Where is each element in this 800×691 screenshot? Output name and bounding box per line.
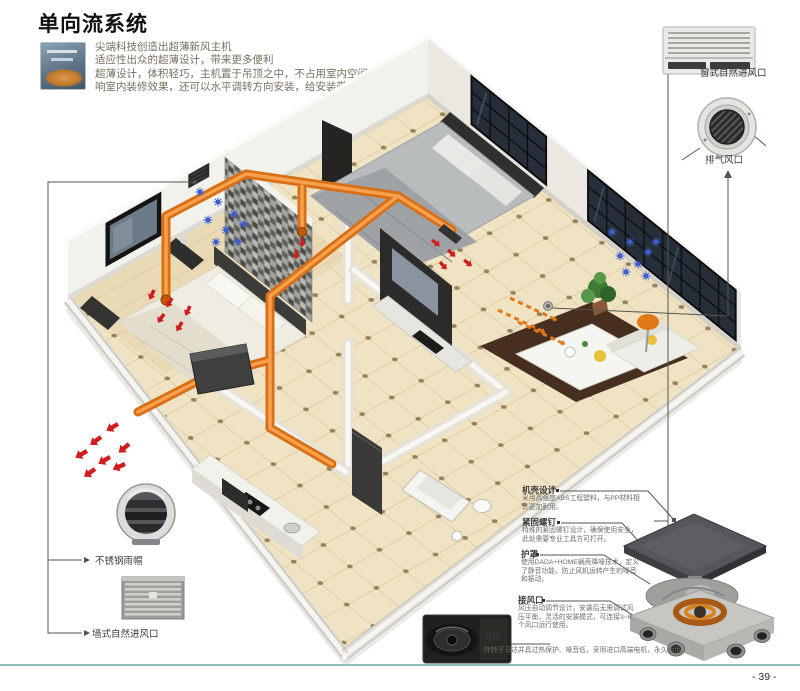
catalog-page: 单向流系统 尖端科技创造出超薄新风主机 适应性出众的超薄设计，带来更多便利 超薄… [0, 0, 800, 691]
exploded-unit-diagram [624, 514, 774, 661]
motor-desc: 外转子马达并具过热保护、噪音低，采用进口高端电机，永久耐用。 [484, 647, 784, 656]
window-inlet-label: 窗式自然进风口 [700, 65, 767, 79]
feature-desc: 采用高强度ABS工程塑料，与PP材料相比更加耐用。 [522, 495, 642, 512]
feature-desc: 风压自动调节设计，安装后无需调试风压平衡，灵活的安装模式，可连接3~6个风口运行… [518, 605, 638, 631]
wall-inlet-label: 墙式自然进风口 [92, 626, 159, 640]
rain-cap-image [117, 484, 175, 545]
exhaust-outlet-label: 排气风口 [705, 152, 743, 166]
feature-desc: 特殊的紧固螺钉设计，确保使用安全，此处需要专业工具方可打开。 [522, 527, 642, 544]
wall-inlet-image [122, 577, 184, 619]
feature-desc: 使用DADA+HOME蜗壳降噪技术，定义了静音功能，防止风机运转产生的噪音和振动… [521, 559, 641, 585]
house-cutaway-illustration [0, 0, 800, 691]
orange-floor-lamp [637, 314, 659, 330]
motor-title: 马达 [484, 630, 501, 642]
rain-cap-label: 不锈钢雨帽 [95, 553, 143, 567]
footer-rule [0, 664, 800, 666]
page-number: - 39 - [752, 671, 777, 683]
exhaust-outlet-image [698, 98, 756, 156]
